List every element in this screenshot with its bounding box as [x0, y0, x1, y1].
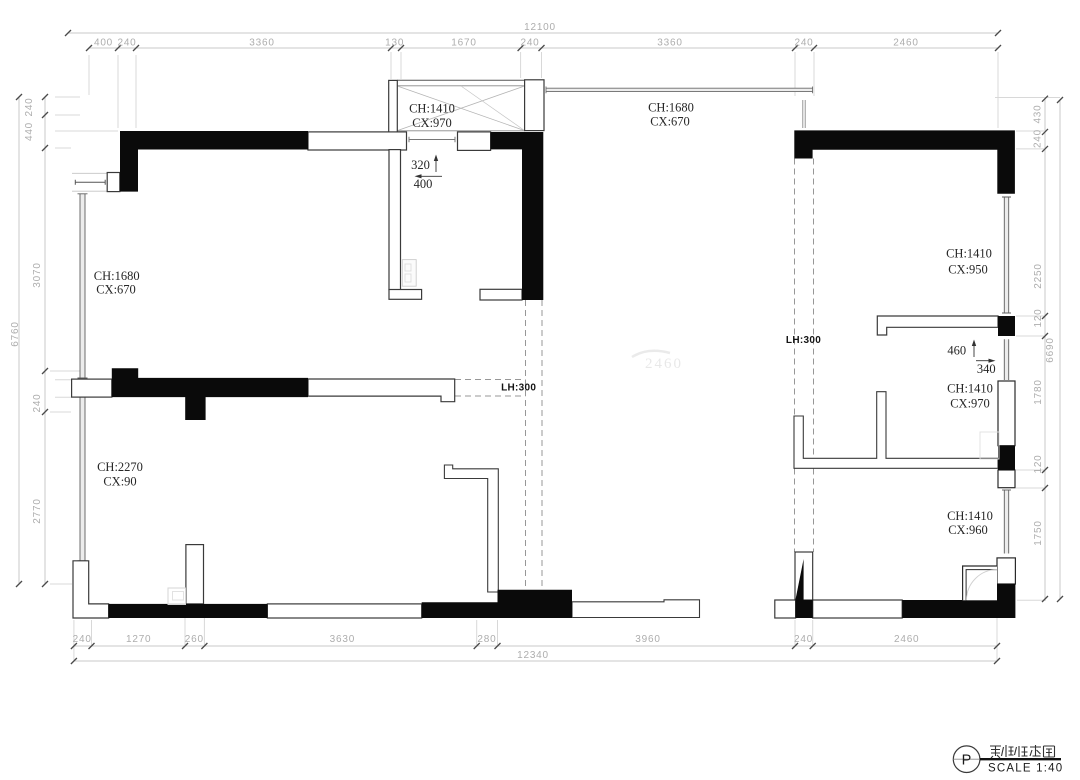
svg-text:430: 430	[1033, 104, 1044, 123]
svg-text:CX:670: CX:670	[96, 283, 136, 297]
svg-text:3630: 3630	[330, 634, 355, 645]
svg-text:240: 240	[73, 634, 92, 645]
svg-text:240: 240	[117, 38, 136, 49]
svg-text:240: 240	[794, 634, 813, 645]
svg-text:240: 240	[32, 393, 43, 412]
svg-text:120: 120	[1033, 454, 1044, 473]
svg-text:CH:2270: CH:2270	[97, 460, 143, 474]
svg-text:460: 460	[947, 344, 966, 358]
svg-text:P: P	[962, 752, 972, 768]
svg-text:2250: 2250	[1033, 263, 1044, 288]
svg-text:280: 280	[477, 634, 496, 645]
svg-text:1750: 1750	[1033, 520, 1044, 545]
svg-text:400: 400	[414, 177, 433, 191]
svg-text:260: 260	[185, 634, 204, 645]
svg-text:240: 240	[24, 97, 35, 116]
svg-text:CH:1680: CH:1680	[648, 101, 694, 115]
svg-text:240: 240	[794, 38, 813, 49]
svg-text:120: 120	[1033, 308, 1044, 327]
svg-text:CX:950: CX:950	[948, 263, 988, 277]
svg-text:1270: 1270	[126, 634, 151, 645]
svg-text:2460: 2460	[894, 634, 919, 645]
svg-text:240: 240	[520, 38, 539, 49]
svg-text:SCALE 1:40: SCALE 1:40	[988, 763, 1063, 775]
svg-text:320: 320	[411, 158, 430, 172]
svg-text:LH:300: LH:300	[786, 335, 821, 346]
svg-text:CX:670: CX:670	[650, 115, 690, 129]
svg-text:6760: 6760	[10, 321, 21, 346]
svg-text:2460: 2460	[645, 356, 683, 372]
svg-text:CX:960: CX:960	[948, 523, 988, 537]
svg-text:12340: 12340	[517, 650, 549, 661]
svg-text:CH:1410: CH:1410	[409, 102, 455, 116]
svg-text:3960: 3960	[635, 634, 660, 645]
svg-text:240: 240	[1033, 129, 1044, 148]
svg-text:3360: 3360	[657, 38, 682, 49]
svg-text:440: 440	[24, 122, 35, 141]
svg-text:6690: 6690	[1045, 337, 1056, 362]
svg-text:130: 130	[385, 38, 404, 49]
svg-text:1780: 1780	[1033, 379, 1044, 404]
svg-text:CH:1680: CH:1680	[94, 269, 140, 283]
svg-text:CH:1410: CH:1410	[947, 509, 993, 523]
svg-text:CH:1410: CH:1410	[946, 247, 992, 261]
svg-text:CX:970: CX:970	[412, 116, 452, 130]
svg-text:340: 340	[977, 362, 996, 376]
svg-text:400: 400	[94, 38, 113, 49]
svg-text:CX:90: CX:90	[103, 475, 136, 489]
svg-text:LH:300: LH:300	[501, 383, 536, 394]
svg-text:CH:1410: CH:1410	[947, 382, 993, 396]
svg-text:3070: 3070	[32, 262, 43, 287]
svg-text:CX:970: CX:970	[950, 397, 990, 411]
svg-text:2460: 2460	[893, 38, 918, 49]
svg-text:3360: 3360	[249, 38, 274, 49]
svg-text:12100: 12100	[524, 22, 556, 33]
svg-text:1670: 1670	[451, 38, 476, 49]
svg-text:2770: 2770	[32, 498, 43, 523]
